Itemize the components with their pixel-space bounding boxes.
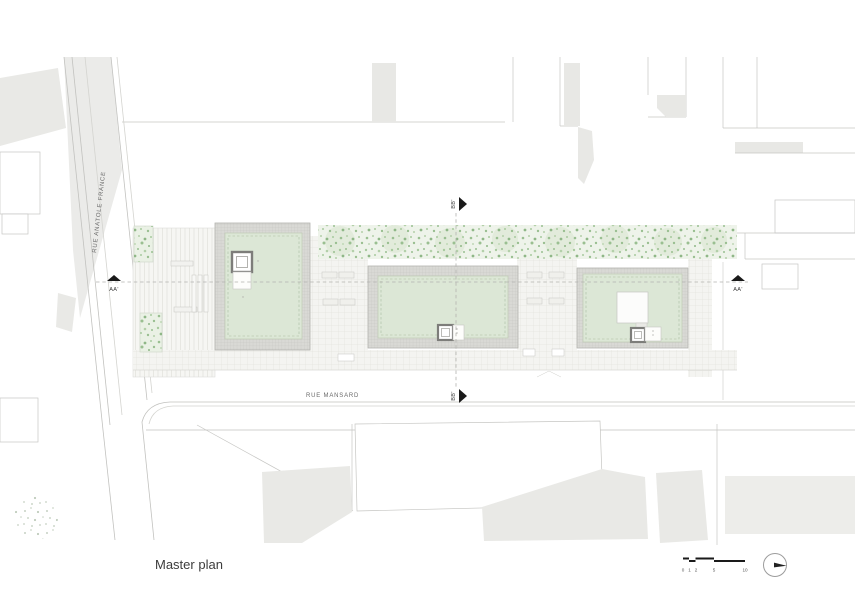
tree-band — [318, 225, 737, 259]
section-label-bb-bottom: BB' — [451, 391, 457, 400]
context-buildings-top — [122, 57, 855, 233]
section-arrow-bb-top-icon — [459, 197, 467, 211]
roof-access-centre — [438, 325, 464, 340]
section-label-bb-top: BB' — [451, 199, 457, 208]
scale-label-1: 1 — [688, 568, 691, 573]
master-plan-page: AA' AA' BB' BB' RUE ANATOLE FRANCE RUE M… — [0, 0, 855, 604]
drawing-title: Master plan — [155, 557, 223, 572]
section-label-aa-left: AA' — [109, 287, 118, 293]
site — [133, 223, 737, 377]
scale-bar: 0 1 2 5 10 — [682, 558, 748, 573]
context-buildings-left — [0, 68, 76, 442]
master-plan-drawing: AA' AA' BB' BB' RUE ANATOLE FRANCE RUE M… — [0, 0, 855, 604]
scale-label-5: 5 — [713, 568, 716, 573]
north-arrow-icon — [764, 554, 787, 577]
scale-label-2: 2 — [695, 568, 698, 573]
section-arrow-aa-right-icon — [731, 275, 745, 281]
skylight-east — [617, 292, 648, 323]
street-label-rue-mansard: RUE MANSARD — [306, 393, 359, 399]
building-west — [215, 223, 310, 350]
section-label-aa-right: AA' — [733, 287, 742, 293]
south-strip-paving — [133, 350, 737, 370]
building-centre — [368, 266, 518, 348]
section-arrow-aa-left-icon — [107, 275, 121, 281]
roof-access-west — [232, 252, 252, 289]
context-buildings-right — [723, 233, 855, 400]
roof-access-east — [631, 327, 661, 342]
scale-label-10: 10 — [742, 568, 748, 573]
building-east — [577, 268, 688, 348]
context-buildings-bottom — [197, 421, 855, 545]
scale-label-0: 0 — [682, 568, 685, 573]
section-arrow-bb-bottom-icon — [459, 389, 467, 403]
tree-symbol — [14, 496, 58, 540]
